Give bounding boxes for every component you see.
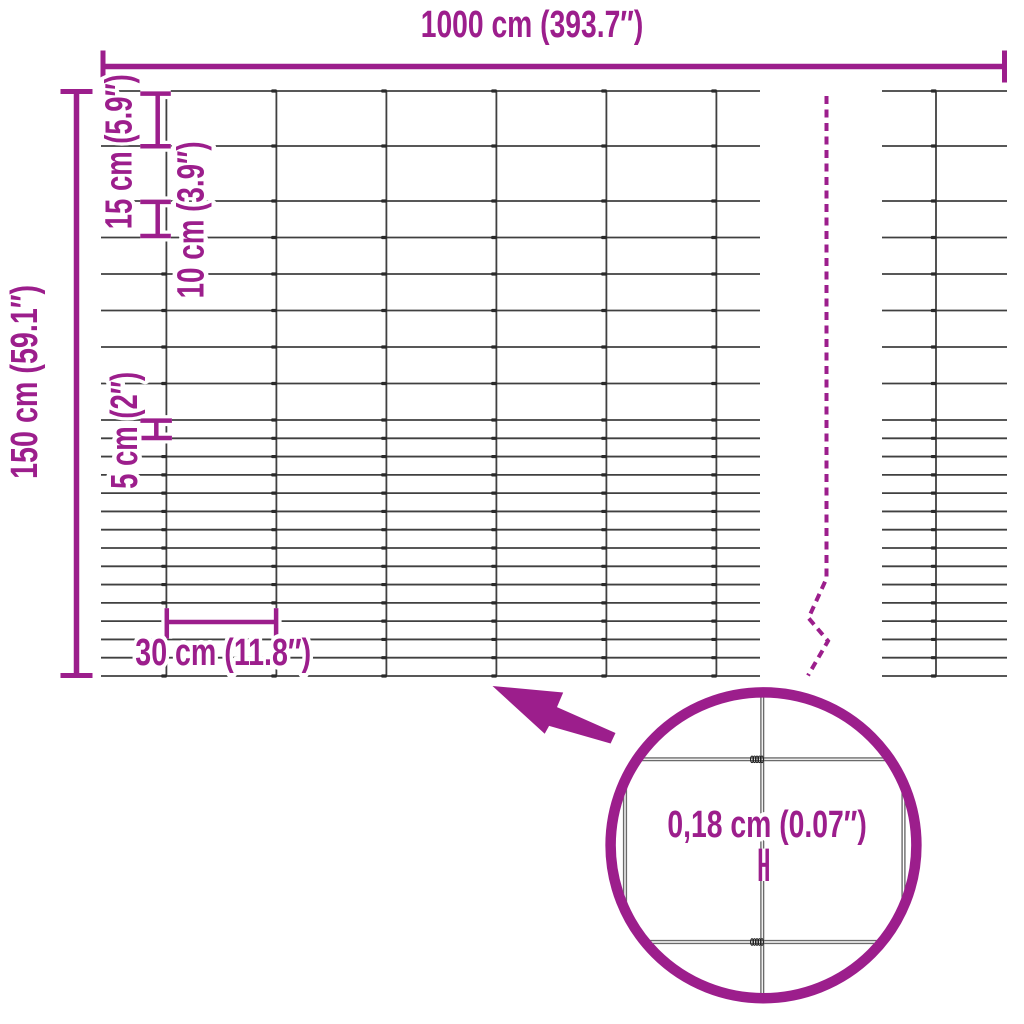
- svg-text:5 cm (2″): 5 cm (2″): [104, 372, 146, 489]
- svg-text:15 cm (5.9″): 15 cm (5.9″): [98, 74, 140, 229]
- svg-text:150 cm (59.1″): 150 cm (59.1″): [4, 285, 46, 479]
- svg-text:0,18 cm (0.07″): 0,18 cm (0.07″): [667, 804, 866, 846]
- svg-text:10 cm (3.9″): 10 cm (3.9″): [171, 141, 213, 298]
- svg-text:30 cm (11.8″): 30 cm (11.8″): [135, 632, 311, 674]
- svg-text:1000 cm (393.7″): 1000 cm (393.7″): [421, 4, 644, 46]
